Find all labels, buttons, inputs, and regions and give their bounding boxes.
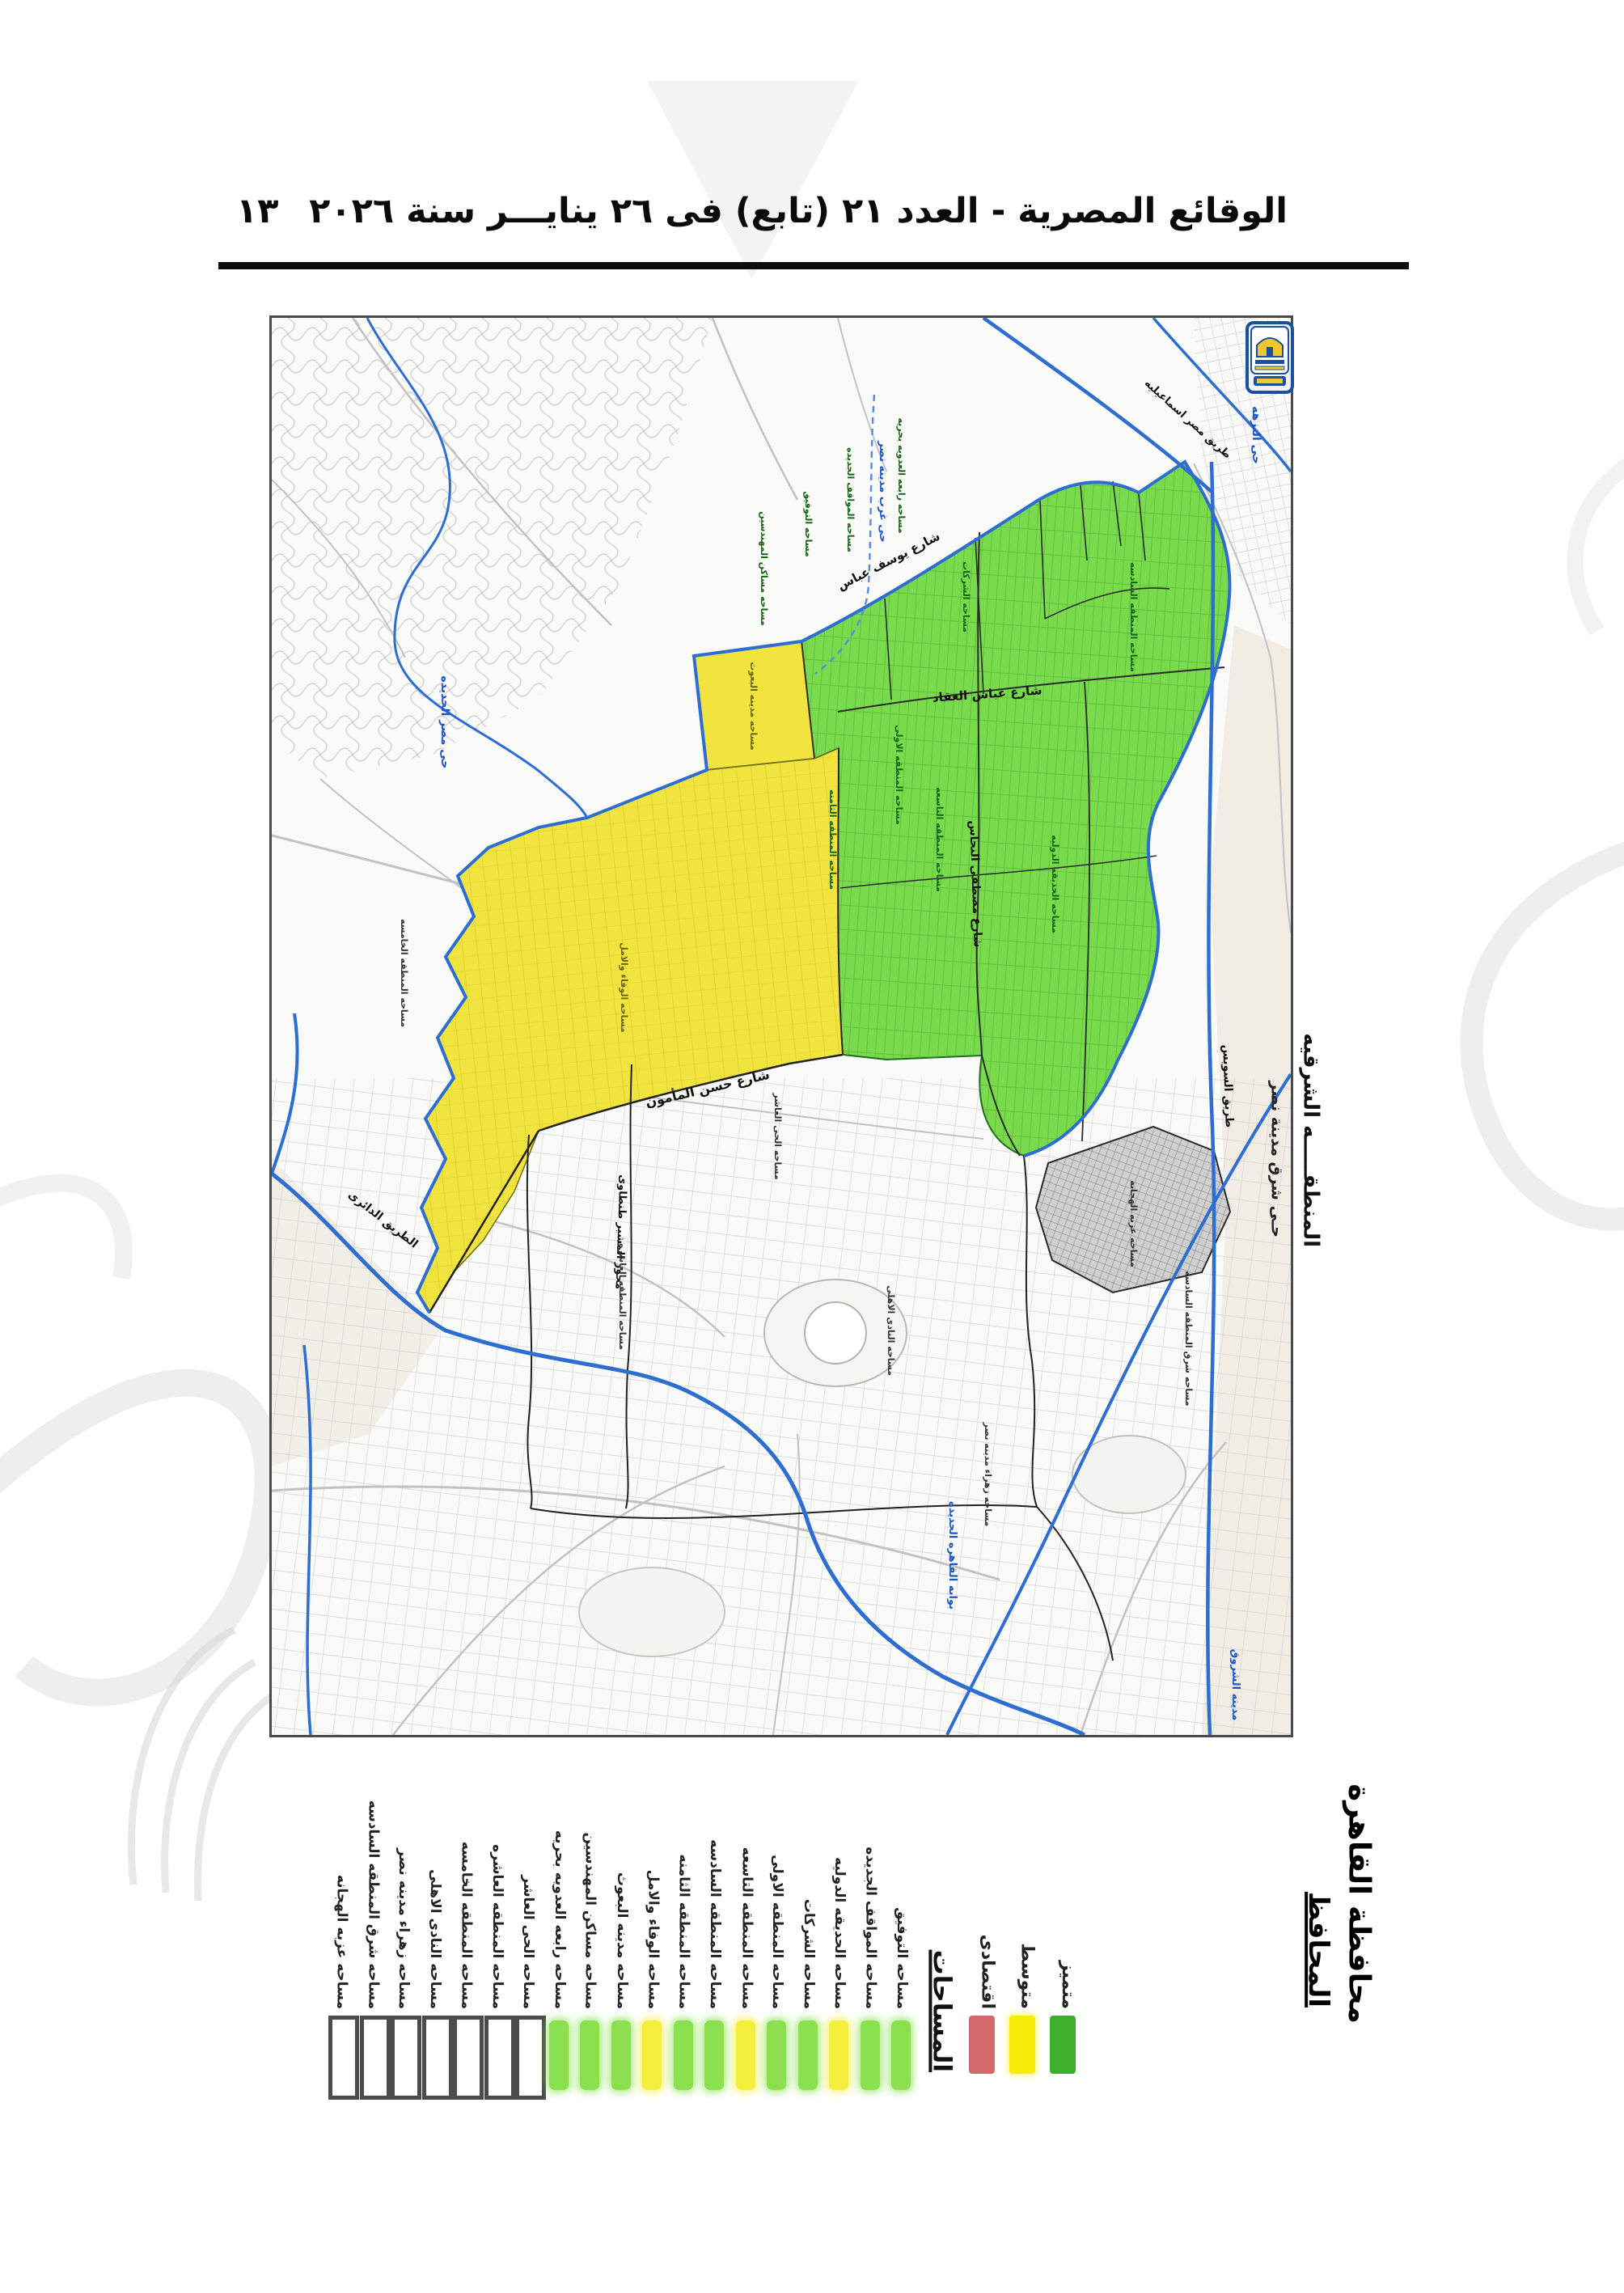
legend-area: مساحه المنطقه السادسه bbox=[699, 1771, 730, 2009]
district-label: مدينه الشروق bbox=[1229, 1649, 1241, 1721]
legend-category-premium: متميز bbox=[1045, 1771, 1081, 2009]
district-label: بوابه القاهره الجديده bbox=[946, 1501, 958, 1610]
area-label-green: مساحه المنطقه الثامنه bbox=[827, 789, 838, 890]
area-label-gray: مساحه النادى الاهلى bbox=[886, 1285, 896, 1376]
legend-area: مساحه المنطقه العاشره bbox=[481, 1771, 512, 2009]
area-label-yellow: مساحه الوفاء والامل bbox=[619, 942, 629, 1033]
area-label-gray: مساحه شرق المنطقه السادسه bbox=[1183, 1271, 1194, 1406]
legend-area: مساحه المواقف الجديده bbox=[855, 1771, 886, 2009]
area-label-green: مساحه رابعه العدويه بحريه bbox=[896, 417, 907, 533]
area-label-yellow: مساحه مدينه البعوث bbox=[748, 662, 759, 750]
legend-area: مساحه رابعه العدويه بحريه bbox=[543, 1771, 574, 2009]
area-label-green: مساحه مساكن المهندسين bbox=[759, 511, 769, 625]
legend-area: مساحه المنطقه الخامسه bbox=[450, 1771, 480, 2009]
area-label-green: مساحه المنطقه الاولى bbox=[894, 725, 904, 825]
area-label-green: مساحه الشركات bbox=[961, 561, 971, 632]
legend-category-medium: متوسط bbox=[1004, 1771, 1040, 2009]
page-title: الوقائع المصرية - العدد ٢١ (تابع) فى ٢٦ … bbox=[309, 191, 1288, 231]
legend-area: مساحه المنطقه الثامنه bbox=[668, 1771, 699, 2009]
area-label-gray: مساحه الحى العاشر bbox=[772, 1092, 783, 1179]
district-map: شارع يوسف عباس شارع عباس العقاد شارع مصط… bbox=[269, 315, 1293, 1737]
district-label: حى مصر الجديده bbox=[438, 675, 451, 768]
legend-area: مساحه مساكن المهندسين bbox=[574, 1771, 605, 2009]
area-label-gray: مساحه عزبه الهجانه bbox=[1128, 1180, 1139, 1267]
area-label-gray: مساحه المنطقه العاشره bbox=[617, 1243, 628, 1350]
area-label-gray: مساحه المنطقه الخامسه bbox=[399, 919, 409, 1027]
legend-area: مساحه مدينه البعوث bbox=[606, 1771, 636, 2009]
area-label-green: مساحه المنطقه السادسه bbox=[1128, 562, 1139, 672]
district-label: حى النزهه bbox=[1250, 406, 1262, 464]
legend-area: مساحه شرق المنطقه السادسه bbox=[357, 1771, 387, 2009]
legend-area: مساحه عزبه الهجانه bbox=[325, 1771, 356, 2009]
district-label: حى غرب مدينه نصر bbox=[877, 440, 889, 543]
legend-area: مساحه زهراء مدينه نصر bbox=[387, 1771, 418, 2009]
region-subtitle: حـى شرق مدينة نصر bbox=[1263, 1043, 1292, 1237]
legend-heading: المساحات bbox=[917, 1771, 954, 2072]
area-label-green: مساحه التوفيق bbox=[803, 491, 814, 556]
legend-area: مساحه المنطقه الاولى bbox=[761, 1771, 792, 2009]
page-number: ١٣ bbox=[236, 191, 279, 231]
signature-organization: محافظة القاهرة bbox=[1334, 1771, 1378, 2024]
area-label-green: مساحه الحديقه الدوليه bbox=[1050, 835, 1060, 933]
header-rule bbox=[218, 262, 1409, 269]
area-label-green: مساحه المواقف الجديده bbox=[845, 447, 856, 552]
area-label-green: مساحه المنطقه التاسعه bbox=[934, 787, 945, 892]
signature-title: المحافظ bbox=[1296, 1771, 1334, 2007]
legend-area: مساحه النادى الاهلى bbox=[419, 1771, 450, 2009]
cairo-governorate-logo-icon bbox=[1245, 321, 1294, 394]
gazette-page: الوقائع المصرية - العدد ٢١ (تابع) فى ٢٦ … bbox=[0, 0, 1624, 2293]
legend-area: مساحه الوفاء والامل bbox=[636, 1771, 667, 2009]
area-label-gray: مساحه زهراء مدينه نصر bbox=[983, 1422, 993, 1527]
legend-category-economic: اقتصادى bbox=[964, 1771, 1000, 2009]
region-title: المنطقـــــه الشرقيه bbox=[1294, 1026, 1331, 1247]
legend-area: مساحه الحى العاشر bbox=[512, 1771, 543, 2009]
legend-area: مساحه المنطقه التاسعه bbox=[730, 1771, 761, 2009]
legend-area: مساحه الشركات bbox=[793, 1771, 823, 2009]
legend-area: مساحه الحديقه الدوليه bbox=[823, 1771, 854, 2009]
legend-area: مساحه التوفيق bbox=[886, 1771, 916, 2009]
